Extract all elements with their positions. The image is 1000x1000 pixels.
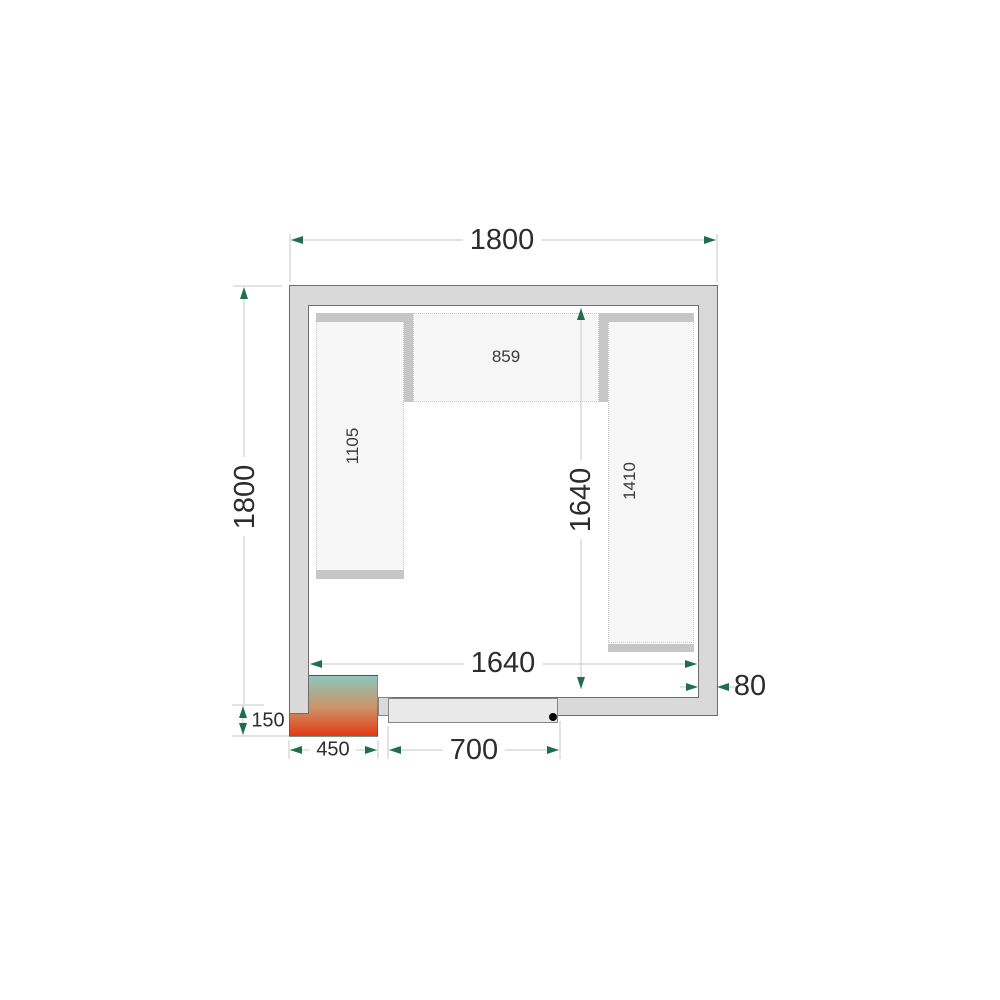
label-overall-depth: 1800 [230,458,260,537]
label-interior-width: 1640 [464,648,543,678]
cold-room-floor-plan: { "labels": { "overall_width": "1800", "… [0,0,1000,1000]
label-overall-width: 1800 [463,225,542,255]
label-wall-thickness: 80 [734,671,766,701]
left-wall-over-unit [289,655,309,714]
shelf-right-edge-top [599,313,694,322]
shelf-left-edge-right [404,313,413,402]
shelf-right-edge-bottom [608,644,694,652]
label-shelf-left: 1105 [344,428,362,465]
label-unit-offset: 150 [251,711,284,732]
label-unit-width: 450 [309,740,356,761]
door-leaf [388,698,558,723]
shelf-left-edge-top [316,313,413,322]
label-shelf-middle: 859 [492,348,520,366]
shelf-left-edge-bottom [316,570,404,579]
door-handle-icon [549,713,557,721]
label-shelf-right: 1410 [621,462,639,500]
shelf-right-edge-left [599,313,608,402]
label-door-width: 700 [443,735,505,765]
label-interior-depth: 1640 [566,461,596,540]
